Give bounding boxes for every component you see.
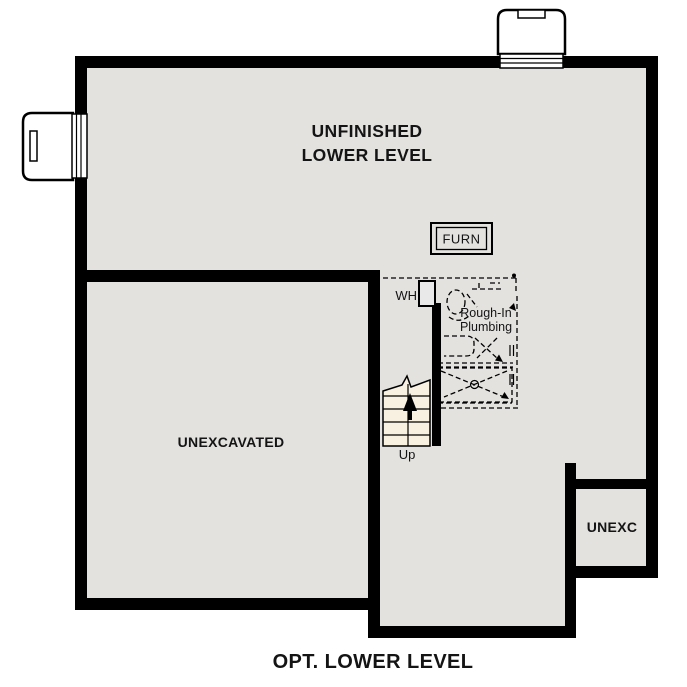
window-frame — [500, 54, 563, 68]
bottom-left-wall — [75, 598, 380, 610]
furnace: FURN — [431, 223, 492, 254]
stair-side-wall — [432, 303, 441, 446]
rough-in-label-line1: Rough-In — [460, 306, 511, 320]
unexc-top-wall — [565, 479, 658, 489]
window-frame — [72, 114, 87, 178]
top-window-well-icon — [498, 10, 565, 68]
plumbing-dot — [512, 274, 516, 278]
unexc-left-wall — [565, 463, 576, 638]
main-room-label-line2: LOWER LEVEL — [302, 145, 433, 165]
window-well-notch — [518, 10, 545, 18]
water-heater-label: WH — [395, 288, 417, 303]
left-window-well-icon — [23, 113, 87, 180]
top-wall — [75, 56, 658, 68]
floor-plan: FURN WH Rough-In Plumbing Up UNFINI — [0, 0, 687, 687]
unexcavated-label: UNEXCAVATED — [178, 434, 285, 450]
main-room-label-line1: UNFINISHED — [312, 121, 423, 141]
stair-up-arrow-stem — [408, 411, 412, 420]
rough-in-label-line2: Plumbing — [460, 320, 512, 334]
floor-plan-svg: FURN WH Rough-In Plumbing Up UNFINI — [0, 0, 687, 687]
window-well-notch — [30, 131, 37, 161]
unexc-label: UNEXC — [587, 519, 638, 535]
plan-caption: OPT. LOWER LEVEL — [273, 651, 474, 673]
unexcavated-top-wall — [75, 270, 380, 282]
stairs-up-label: Up — [399, 447, 416, 462]
bottom-center-wall — [368, 626, 576, 638]
water-heater-box — [419, 281, 435, 306]
furnace-label: FURN — [442, 232, 480, 247]
right-wall — [646, 56, 658, 578]
unexcavated-right-wall — [368, 270, 380, 638]
unexc-bottom-wall — [565, 566, 658, 578]
